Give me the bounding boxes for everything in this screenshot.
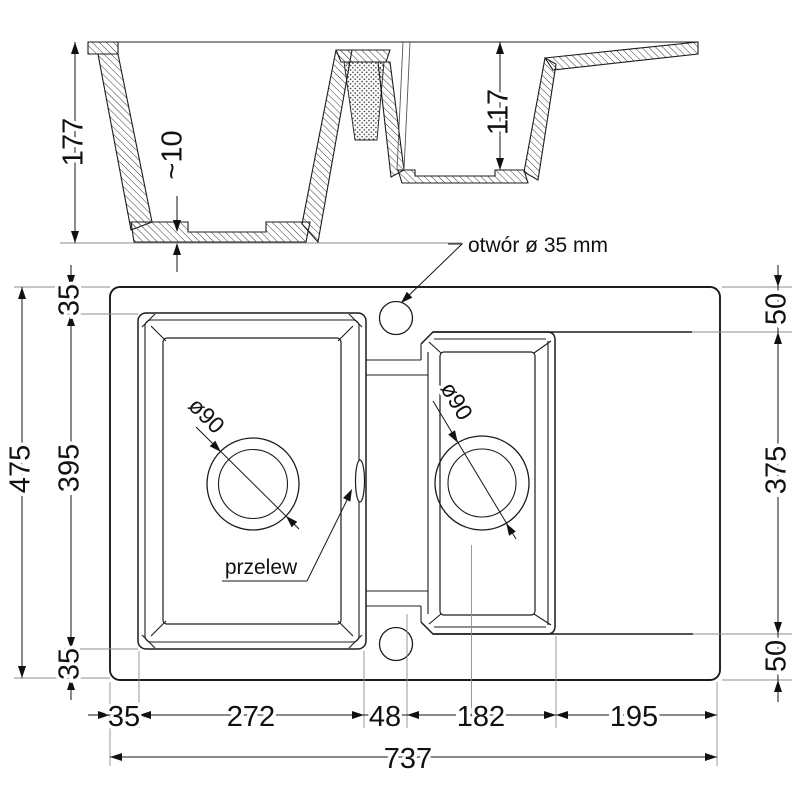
dim-left-top: 35 [54, 284, 86, 316]
faucet-hole-label: otwór ø 35 mm [468, 234, 608, 257]
dim-left-mid: 395 [54, 444, 86, 492]
dim-total-height: 475 [5, 445, 37, 493]
dim-total-width: 737 [384, 743, 432, 775]
dim-right-bottom: 50 [761, 640, 793, 672]
overflow-slot [356, 460, 365, 502]
divider-cap-section [336, 50, 390, 62]
dim-bottom-5: 195 [610, 701, 658, 733]
sink-technical-drawing: 177 ~10 117 [0, 0, 800, 800]
dim-bottom-thickness: ~10 [157, 130, 189, 179]
dim-right-top: 50 [761, 293, 793, 325]
dim-depth-small: 117 [483, 89, 515, 135]
overflow-label: przelew [225, 556, 298, 579]
dim-bottom-1: 35 [108, 701, 140, 733]
dim-right-mid: 375 [761, 446, 793, 494]
left-flange-section [88, 42, 118, 54]
dim-depth-main: 177 [58, 118, 90, 166]
dim-bottom-3: 48 [369, 701, 401, 733]
dim-bottom-4: 182 [457, 701, 505, 733]
dim-left-bottom: 35 [54, 648, 86, 680]
dim-bottom-2: 272 [227, 701, 275, 733]
